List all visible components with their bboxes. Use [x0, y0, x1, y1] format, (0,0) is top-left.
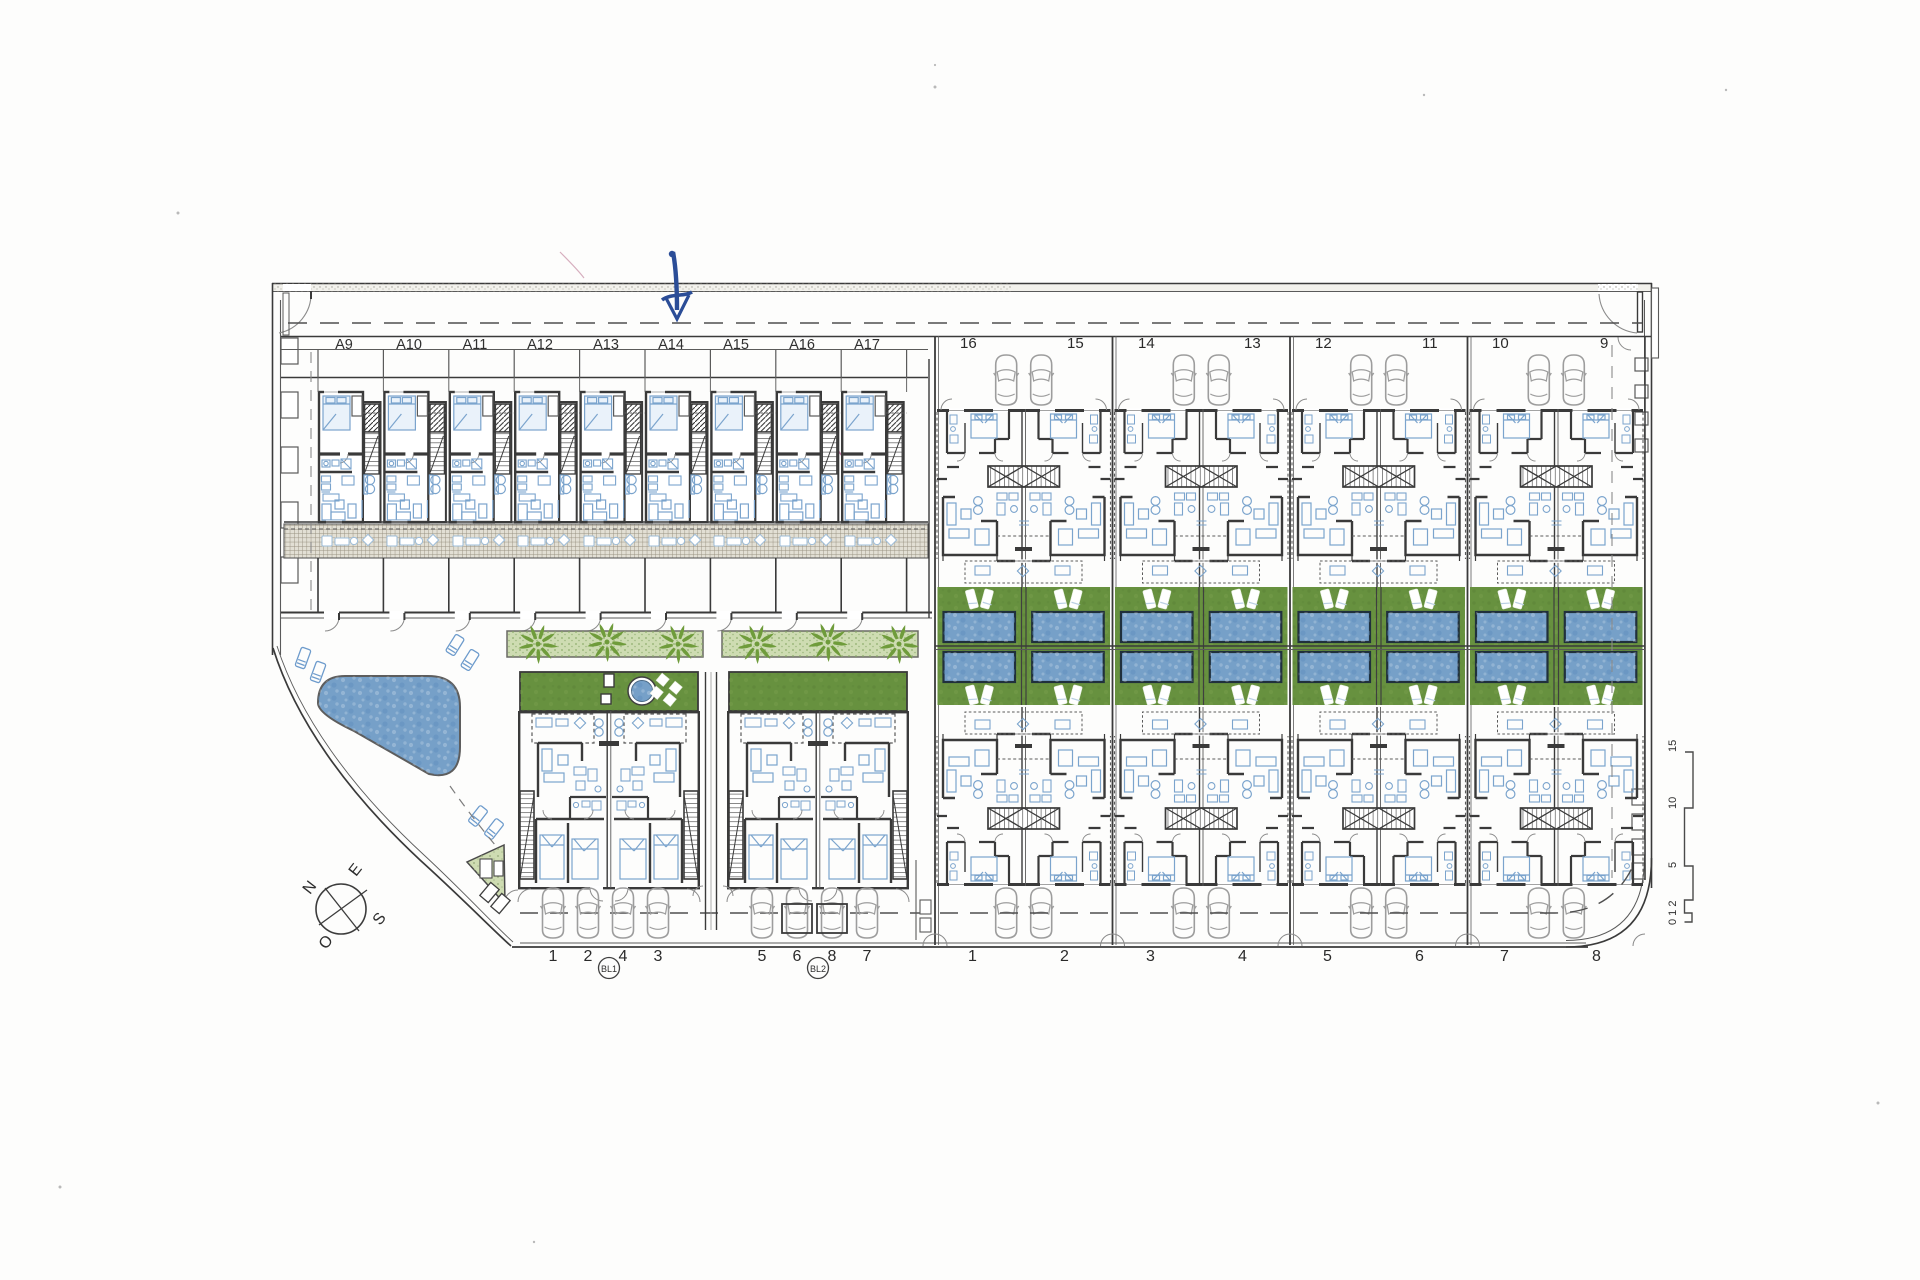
svg-text:6: 6 [793, 948, 802, 965]
svg-text:3: 3 [1146, 948, 1155, 965]
svg-text:12: 12 [1315, 335, 1332, 352]
svg-text:16: 16 [960, 335, 977, 352]
svg-text:7: 7 [1500, 948, 1509, 965]
svg-text:BL1: BL1 [601, 964, 617, 974]
svg-text:A15: A15 [723, 337, 749, 353]
svg-text:10: 10 [1492, 335, 1509, 352]
svg-text:8: 8 [1592, 948, 1601, 965]
svg-text:15: 15 [1667, 740, 1679, 752]
svg-text:11: 11 [1422, 335, 1438, 352]
svg-text:A10: A10 [396, 337, 422, 353]
svg-text:A16: A16 [789, 337, 815, 353]
svg-text:2: 2 [1060, 948, 1069, 965]
svg-text:3: 3 [654, 948, 663, 965]
svg-text:9: 9 [1600, 335, 1608, 352]
svg-text:8: 8 [828, 948, 837, 965]
svg-text:13: 13 [1244, 335, 1261, 352]
svg-text:6: 6 [1415, 948, 1424, 965]
svg-text:4: 4 [1238, 948, 1247, 965]
svg-text:2: 2 [584, 948, 593, 965]
svg-text:0 1 2: 0 1 2 [1667, 901, 1679, 925]
svg-text:1: 1 [968, 948, 977, 965]
svg-text:5: 5 [1667, 862, 1679, 868]
svg-text:BL2: BL2 [810, 964, 826, 974]
svg-text:A13: A13 [593, 337, 619, 353]
svg-text:7: 7 [863, 948, 872, 965]
svg-text:14: 14 [1138, 335, 1155, 352]
svg-text:4: 4 [619, 948, 628, 965]
svg-text:A14: A14 [658, 337, 684, 353]
svg-text:10: 10 [1667, 797, 1679, 809]
svg-text:1: 1 [549, 948, 558, 965]
svg-text:15: 15 [1067, 335, 1084, 352]
svg-text:A12: A12 [527, 337, 553, 353]
svg-text:A17: A17 [854, 337, 880, 353]
svg-text:5: 5 [758, 948, 767, 965]
svg-text:5: 5 [1323, 948, 1332, 965]
svg-text:A9: A9 [335, 337, 353, 353]
svg-text:A11: A11 [463, 337, 488, 353]
